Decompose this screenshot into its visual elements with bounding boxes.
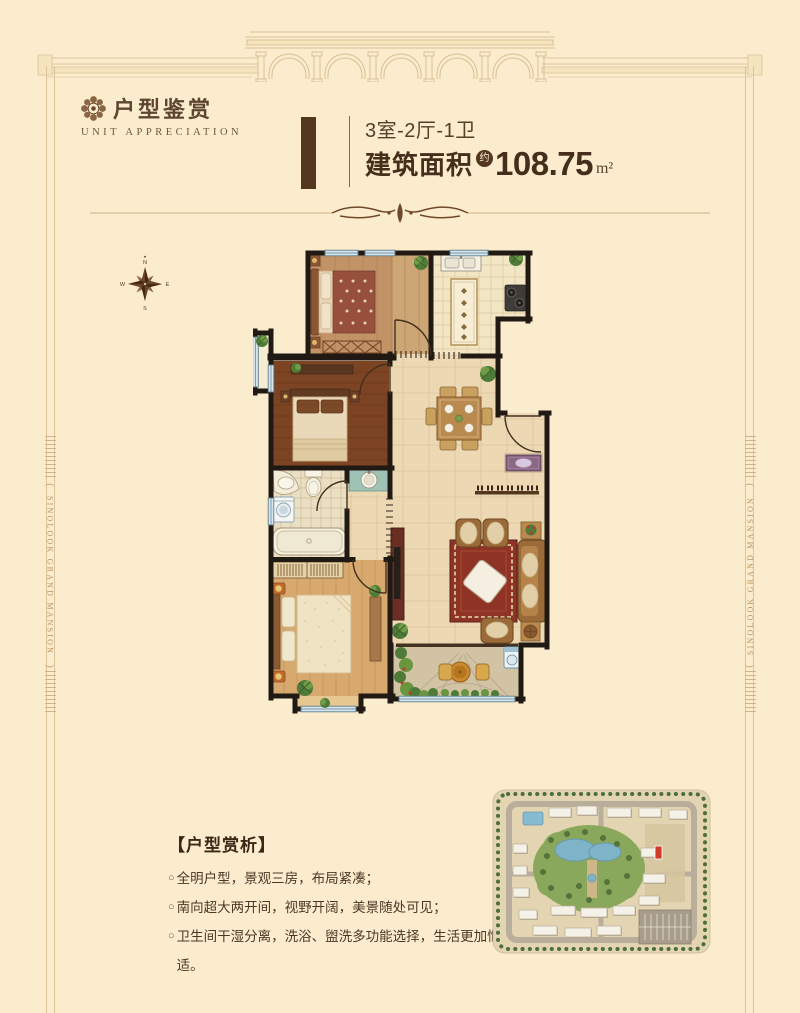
rosette-seal-icon xyxy=(80,95,107,122)
highlighted-building-marker xyxy=(655,846,662,859)
compass-rose: N E S W xyxy=(119,255,171,311)
plant xyxy=(480,366,496,382)
vanity-fixtures xyxy=(349,469,389,491)
bullet-marker: ○ xyxy=(168,893,175,922)
logo-subtitle: UNIT APPRECIATION xyxy=(81,127,242,138)
bracket-ornament: ) xyxy=(745,664,755,668)
flower-plant xyxy=(526,525,537,536)
flute-ticks xyxy=(45,671,56,715)
area-unit: m² xyxy=(596,160,613,178)
right-margin-text: SINOLOOK GRAND MANSION xyxy=(746,496,755,655)
floor-plan xyxy=(253,241,568,718)
compass-n: N xyxy=(143,260,147,266)
swimming-pool xyxy=(523,812,543,825)
compass-w: W xyxy=(120,282,126,288)
fountain xyxy=(588,874,596,882)
divider-flourish xyxy=(90,200,710,226)
area-value: 108.75 xyxy=(495,147,593,180)
bracket-ornament: ( xyxy=(45,483,55,487)
area-label: 建筑面积 xyxy=(365,150,473,180)
parking-lot xyxy=(639,910,691,944)
balcony-chair xyxy=(439,664,452,680)
header-divider-line xyxy=(349,116,350,187)
left-margin-ornament: ( SINOLOOK GRAND MANSION ) xyxy=(38,436,62,715)
analysis-title: 【户型赏析】 xyxy=(168,831,528,856)
arcade-ornament xyxy=(245,28,555,82)
area-approx-badge: 约 xyxy=(476,150,493,167)
header-info: 3室-2厅-1卫 建筑面积 约 108.75 m² xyxy=(301,114,613,189)
logo-block: 户型鉴赏 UNIT APPRECIATION xyxy=(80,92,242,138)
plant xyxy=(414,256,428,270)
header-accent-bar xyxy=(301,117,316,189)
analysis-bullet: ○ 南向超大两开间，视野开阔，美景随处可见； xyxy=(168,893,528,922)
sofa xyxy=(518,540,547,622)
logo-title: 户型鉴赏 xyxy=(113,92,213,124)
compass-s: S xyxy=(143,306,147,311)
right-margin-ornament: ( SINOLOOK GRAND MANSION ) xyxy=(738,436,762,715)
bracket-ornament: ) xyxy=(45,664,55,668)
analysis-bullet: ○ 全明户型，景观三房，布局紧凑； xyxy=(168,864,528,893)
unit-layout-text: 3室-2厅-1卫 xyxy=(365,114,613,143)
bullet-marker: ○ xyxy=(168,864,175,893)
bullet-text: 全明户型，景观三房，布局紧凑； xyxy=(177,864,380,893)
armchair xyxy=(481,618,513,643)
flute-ticks xyxy=(745,436,756,480)
flute-ticks xyxy=(745,671,756,715)
bullet-text: 南向超大两开间，视野开阔，美景随处可见； xyxy=(177,893,447,922)
plant xyxy=(392,623,408,639)
analysis-block: 【户型赏析】 ○ 全明户型，景观三房，布局紧凑； ○ 南向超大两开间，视野开阔，… xyxy=(168,831,528,980)
left-margin-text: SINOLOOK GRAND MANSION xyxy=(46,496,55,655)
bullet-marker: ○ xyxy=(168,922,175,980)
flute-ticks xyxy=(45,436,56,480)
poster-page: ( SINOLOOK GRAND MANSION ) ( SINOLOOK GR… xyxy=(0,0,800,1013)
armchair xyxy=(483,519,508,547)
compass-e: E xyxy=(166,282,170,288)
bullet-text: 卫生间干湿分离，洗浴、盥洗多功能选择，生活更加惬意舒适。 xyxy=(177,922,528,980)
armchair xyxy=(456,519,481,547)
toilet xyxy=(305,470,322,477)
bracket-ornament: ( xyxy=(745,483,755,487)
plant xyxy=(291,363,301,373)
analysis-bullet: ○ 卫生间干湿分离，洗浴、盥洗多功能选择，生活更加惬意舒适。 xyxy=(168,922,528,980)
balcony-chair xyxy=(476,664,489,680)
site-plan xyxy=(489,788,714,956)
